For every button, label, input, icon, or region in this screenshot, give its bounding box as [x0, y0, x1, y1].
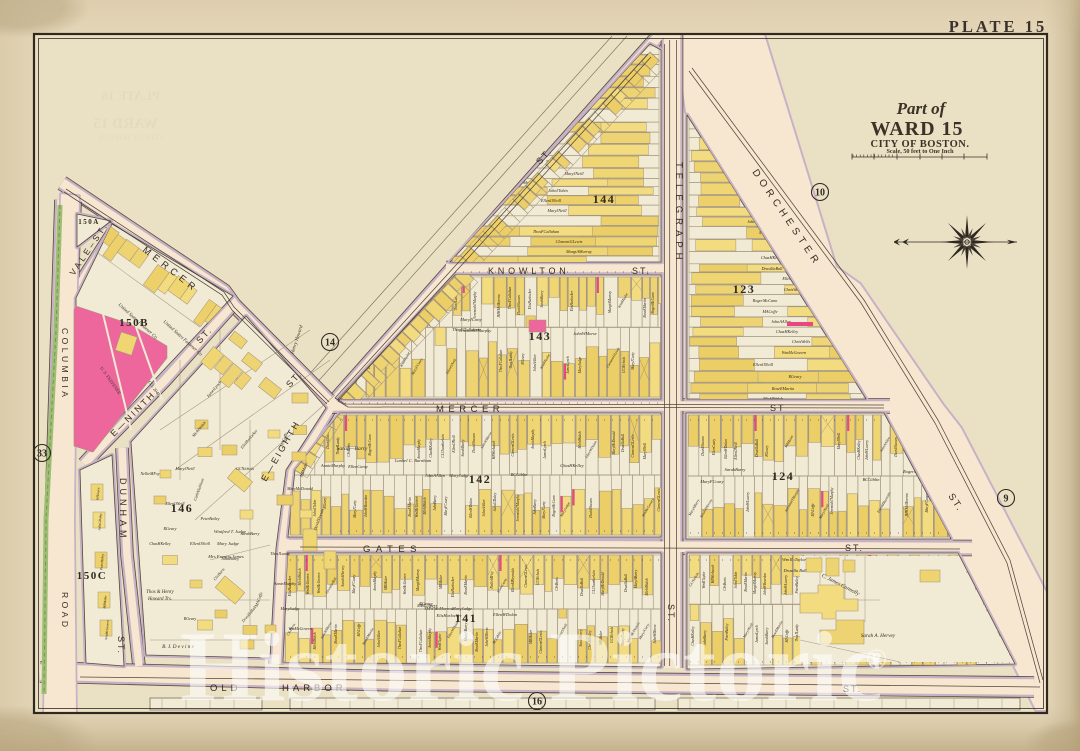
svg-text:BCGiblin: BCGiblin: [511, 472, 529, 477]
svg-text:MaryMcDonald: MaryMcDonald: [612, 431, 616, 455]
svg-text:ST.: ST.: [116, 636, 126, 655]
svg-text:JohnBarey: JohnBarey: [433, 495, 437, 511]
svg-text:JamesLynch: JamesLynch: [543, 441, 547, 459]
svg-text:ThosJLundy: ThosJLundy: [270, 551, 290, 556]
svg-text:ThosFCallahan: ThosFCallahan: [452, 327, 480, 332]
svg-text:AnnieMurphy: AnnieMurphy: [273, 581, 296, 586]
svg-text:123: 123: [733, 282, 756, 296]
svg-text:PLATE 16: PLATE 16: [101, 88, 160, 103]
svg-text:Sarah—Barry: Sarah—Barry: [337, 446, 368, 452]
svg-text:Mrs Francis James: Mrs Francis James: [207, 554, 244, 559]
svg-text:SarahBarry: SarahBarry: [461, 439, 465, 456]
svg-text:RoseEMartin: RoseEMartin: [771, 386, 794, 391]
svg-text:JohnWReardon: JohnWReardon: [763, 573, 767, 595]
svg-text:®: ®: [866, 644, 887, 675]
svg-text:MaryMcDonald: MaryMcDonald: [601, 572, 605, 596]
svg-text:MaryMcDonald: MaryMcDonald: [286, 486, 314, 491]
svg-text:Part of: Part of: [896, 99, 948, 118]
svg-text:DavidSlocum: DavidSlocum: [701, 436, 705, 457]
svg-text:AnnieMurphy: AnnieMurphy: [373, 571, 377, 592]
svg-text:ClementGLewis: ClementGLewis: [556, 239, 583, 244]
svg-text:CSvBorts: CSvBorts: [555, 577, 559, 591]
svg-text:CSvBorts: CSvBorts: [723, 577, 727, 591]
svg-text:ChasHKelley: ChasHKelley: [776, 329, 798, 334]
svg-text:GCNichols: GCNichols: [622, 356, 626, 373]
svg-text:JohnWLavery: JohnWLavery: [746, 492, 750, 512]
svg-text:9: 9: [1004, 493, 1009, 504]
svg-text:EllenWDolan: EllenWDolan: [469, 498, 473, 519]
svg-text:MaryFCoary: MaryFCoary: [699, 479, 723, 484]
svg-text:PeterBailey: PeterBailey: [200, 516, 220, 521]
svg-text:WmRTaylor: WmRTaylor: [702, 571, 706, 589]
svg-text:MargtAMurray: MargtAMurray: [608, 291, 612, 314]
svg-text:MaryJNeill: MaryJNeill: [643, 443, 647, 460]
svg-text:EllenONeill: EllenONeill: [189, 541, 211, 546]
svg-text:GCNichols: GCNichols: [236, 466, 254, 471]
svg-text:Howard Trs.: Howard Trs.: [147, 597, 172, 602]
svg-text:MRMaler: MRMaler: [384, 575, 388, 591]
svg-text:JohnWLavery: JohnWLavery: [784, 575, 788, 595]
svg-text:RogerMcCann: RogerMcCann: [651, 292, 655, 314]
svg-text:WmMcGovern: WmMcGovern: [317, 572, 321, 593]
svg-text:ST: ST: [770, 403, 786, 413]
svg-text:MargtAMurray: MargtAMurray: [416, 569, 420, 592]
svg-text:MaryJCarty: MaryJCarty: [631, 352, 635, 371]
svg-text:ThosFCallahan: ThosFCallahan: [533, 229, 559, 234]
svg-text:AnnieMurphy: AnnieMurphy: [320, 463, 345, 468]
svg-text:JohnAAllen: JohnAAllen: [533, 354, 537, 371]
svg-text:ElisHurlocker: ElisHurlocker: [288, 575, 292, 597]
svg-text:TELEGRAPH: TELEGRAPH: [673, 162, 684, 265]
svg-text:JMWMcMorrow: JMWMcMorrow: [497, 293, 501, 317]
svg-text:NellieMFoy: NellieMFoy: [490, 571, 494, 590]
svg-text:MaryJudge: MaryJudge: [448, 473, 469, 478]
svg-text:MaryJNeill: MaryJNeill: [546, 208, 567, 213]
svg-text:146: 146: [171, 501, 194, 515]
svg-text:EllenONeill: EllenONeill: [452, 435, 456, 453]
svg-text:MichlWalsh: MichlWalsh: [578, 431, 582, 449]
svg-text:Lanbel C. Burnham: Lanbel C. Burnham: [394, 458, 432, 463]
svg-text:MaryJCarty: MaryJCarty: [353, 500, 357, 519]
svg-text:RGeary: RGeary: [323, 497, 327, 510]
svg-text:MargtAMurray: MargtAMurray: [565, 249, 592, 254]
svg-text:MaryJNeill: MaryJNeill: [837, 433, 841, 450]
svg-text:HRWiebusch: HRWiebusch: [711, 565, 715, 585]
svg-text:DUNHAM: DUNHAM: [118, 478, 128, 542]
svg-text:RogerMcCann: RogerMcCann: [552, 495, 556, 517]
svg-text:SarahAHervey: SarahAHervey: [341, 565, 345, 587]
svg-text:ElisHurlocker: ElisHurlocker: [570, 290, 574, 312]
svg-text:JeremiahTMurphy: JeremiahTMurphy: [473, 291, 477, 318]
svg-text:MACoffe: MACoffe: [811, 503, 815, 517]
svg-text:NellieMFoy: NellieMFoy: [139, 471, 159, 476]
svg-text:Winifred T. Judge: Winifred T. Judge: [214, 529, 246, 534]
svg-text:144: 144: [593, 192, 616, 206]
svg-text:ThosFCallahan: ThosFCallahan: [499, 350, 503, 373]
svg-text:KNOWLTON: KNOWLTON: [488, 266, 570, 276]
svg-text:RoseEMartin: RoseEMartin: [744, 572, 748, 592]
svg-text:WARD 15: WARD 15: [870, 118, 963, 140]
svg-text:RGeary: RGeary: [765, 445, 769, 458]
svg-text:ChasHKelley: ChasHKelley: [149, 541, 171, 546]
svg-text:EllenONeill: EllenONeill: [752, 362, 774, 367]
svg-text:MaryJNeill: MaryJNeill: [174, 466, 195, 471]
svg-text:ElisHurlocker: ElisHurlocker: [451, 576, 455, 598]
svg-text:JuliaGDaley: JuliaGDaley: [493, 492, 497, 511]
svg-text:ST.: ST.: [845, 543, 864, 553]
svg-text:ThosJLundy: ThosJLundy: [509, 351, 513, 369]
svg-text:RoseEMartin: RoseEMartin: [643, 298, 647, 318]
svg-text:ChasHKelley: ChasHKelley: [429, 438, 433, 458]
svg-text:ChrisWells: ChrisWells: [792, 339, 811, 344]
svg-text:DavidSlocum: DavidSlocum: [517, 295, 521, 316]
svg-text:124: 124: [772, 469, 795, 483]
svg-text:EllenONeill: EllenONeill: [734, 442, 738, 460]
svg-text:JohnJTobin: JohnJTobin: [734, 571, 738, 588]
svg-text:MaryABarry: MaryABarry: [634, 569, 638, 589]
svg-text:AnnieMurphy: AnnieMurphy: [417, 439, 421, 460]
svg-text:DavidSlocum: DavidSlocum: [894, 437, 898, 458]
svg-text:GATES: GATES: [363, 544, 422, 555]
svg-text:ChasHKelley: ChasHKelley: [560, 463, 583, 468]
svg-text:150B: 150B: [119, 317, 149, 329]
svg-text:ROAD: ROAD: [60, 592, 70, 631]
svg-text:ST.: ST.: [632, 266, 651, 276]
svg-text:DavidSlocum: DavidSlocum: [589, 498, 593, 519]
svg-text:ElisHurlocker: ElisHurlocker: [528, 288, 532, 310]
svg-text:RGeary: RGeary: [418, 601, 433, 606]
svg-text:JohnWMorse: JohnWMorse: [573, 331, 596, 336]
svg-text:DrusillaBall: DrusillaBall: [621, 434, 625, 453]
svg-text:ClementGLewis: ClementGLewis: [657, 488, 661, 512]
svg-text:RGeary: RGeary: [787, 374, 801, 379]
svg-text:Wm R. Taylor: Wm R. Taylor: [782, 557, 806, 562]
svg-text:JohnAAllen: JohnAAllen: [482, 499, 486, 516]
svg-text:JohnWReardon: JohnWReardon: [364, 495, 368, 517]
svg-text:EllenMReynolds: EllenMReynolds: [511, 568, 515, 593]
svg-text:WmMcGovern: WmMcGovern: [782, 350, 806, 355]
svg-text:JMWMcMorrow: JMWMcMorrow: [905, 492, 909, 516]
svg-text:HRWiebusch: HRWiebusch: [492, 441, 496, 461]
svg-text:JeremiahTMurphy: JeremiahTMurphy: [830, 487, 834, 514]
svg-text:JohnWLavery: JohnWLavery: [865, 440, 869, 460]
svg-text:ClementGLewis: ClementGLewis: [524, 564, 528, 588]
svg-text:Thos & Henry: Thos & Henry: [146, 590, 174, 595]
svg-text:COLUMBIA: COLUMBIA: [60, 328, 70, 400]
svg-text:MACoffe: MACoffe: [761, 309, 777, 314]
svg-text:CLChamberlain: CLChamberlain: [441, 434, 445, 458]
svg-text:RoseEMartin: RoseEMartin: [408, 497, 412, 517]
svg-text:MaryFCoary: MaryFCoary: [352, 574, 356, 594]
svg-text:Drusilla Ball: Drusilla Ball: [782, 568, 807, 573]
svg-text:GCNichols: GCNichols: [536, 568, 540, 585]
svg-text:WmMcGovern: WmMcGovern: [403, 573, 407, 594]
svg-text:RGeary: RGeary: [162, 526, 176, 531]
svg-text:ChasHKelley: ChasHKelley: [857, 440, 861, 460]
svg-text:RogerMcCann: RogerMcCann: [368, 434, 372, 456]
svg-text:WmMcGovern: WmMcGovern: [415, 496, 419, 517]
svg-text:AnnieMurphy: AnnieMurphy: [531, 429, 535, 450]
svg-text:142: 142: [469, 472, 492, 486]
svg-text:14: 14: [325, 337, 335, 348]
svg-text:JohnBarey: JohnBarey: [533, 499, 537, 515]
svg-text:BCGiblin: BCGiblin: [863, 477, 881, 482]
svg-text:DrusillaBall: DrusillaBall: [755, 439, 759, 458]
svg-text:MaryJCarty: MaryJCarty: [542, 501, 546, 520]
svg-text:SarahBarry: SarahBarry: [725, 467, 746, 472]
svg-text:WmMcGovern: WmMcGovern: [306, 573, 310, 594]
svg-text:MichlWalsh: MichlWalsh: [298, 568, 302, 586]
svg-text:DrusillaBall: DrusillaBall: [624, 574, 628, 593]
svg-text:CITY OF BOSTON: CITY OF BOSTON: [98, 133, 163, 142]
svg-text:150C: 150C: [77, 570, 107, 582]
svg-text:MERCER: MERCER: [436, 404, 504, 415]
svg-text:MaryJCarty: MaryJCarty: [459, 317, 482, 322]
svg-text:EllenONeill: EllenONeill: [540, 198, 562, 203]
svg-text:DrusillaBall: DrusillaBall: [580, 578, 584, 597]
svg-text:Mary Judge: Mary Judge: [216, 541, 239, 546]
svg-text:ThosFCallahan: ThosFCallahan: [508, 287, 512, 310]
svg-text:DrusillaBall: DrusillaBall: [761, 266, 784, 271]
svg-text:CLChamberlain: CLChamberlain: [592, 570, 596, 594]
svg-text:MRMaler: MRMaler: [439, 574, 443, 590]
svg-text:150A: 150A: [78, 218, 100, 226]
svg-text:DavidSlocum: DavidSlocum: [472, 433, 476, 454]
svg-text:RogerMcCann: RogerMcCann: [752, 298, 778, 303]
svg-text:EllenCanty: EllenCanty: [712, 439, 716, 457]
svg-text:RoseEMartin: RoseEMartin: [464, 575, 468, 595]
svg-text:PeterBailey: PeterBailey: [795, 576, 799, 594]
svg-text:ClementGLewis: ClementGLewis: [631, 434, 635, 458]
svg-text:JamesLynch: JamesLynch: [566, 356, 570, 374]
svg-text:MargtAMurray: MargtAMurray: [753, 572, 757, 595]
svg-text:JohnAAllen: JohnAAllen: [425, 473, 446, 478]
svg-text:MichlWalsh: MichlWalsh: [645, 578, 649, 596]
svg-text:JohnJTobin: JohnJTobin: [313, 499, 317, 516]
svg-text:WARD 15: WARD 15: [93, 116, 158, 132]
svg-text:SarahBarry: SarahBarry: [540, 290, 544, 307]
svg-text:MichlWalsh: MichlWalsh: [423, 497, 427, 515]
svg-text:10: 10: [815, 187, 825, 198]
svg-text:RGeary: RGeary: [521, 353, 525, 366]
svg-text:EllenWDolan: EllenWDolan: [724, 439, 728, 460]
svg-text:MaryJudge: MaryJudge: [578, 356, 582, 374]
svg-text:MaryFCoary: MaryFCoary: [444, 496, 448, 516]
svg-text:Historic Pictoric: Historic Pictoric: [180, 611, 882, 722]
svg-text:ClementGLewis: ClementGLewis: [511, 433, 515, 457]
svg-text:JeremiahTMurphy: JeremiahTMurphy: [516, 494, 520, 521]
svg-text:EllenCanty: EllenCanty: [347, 464, 368, 469]
